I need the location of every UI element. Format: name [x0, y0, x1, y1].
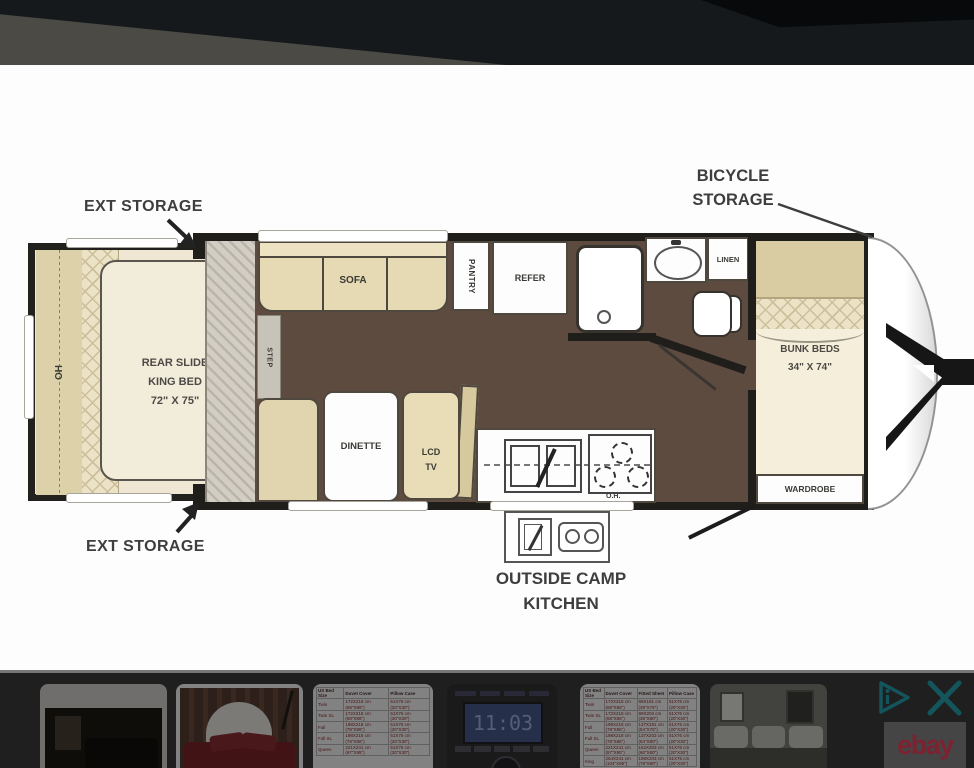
burner: [611, 442, 633, 464]
sofa-label: SOFA: [260, 275, 446, 286]
ext-storage-top-label: EXT STORAGE: [84, 198, 203, 216]
wardrobe: WARDROBE: [756, 474, 864, 504]
dinette: DINETTE: [323, 391, 399, 502]
ext-storage-top-arrow: [162, 216, 206, 254]
ad-dim-overlay: [0, 670, 974, 768]
bathroom-wall: [568, 333, 656, 341]
oh-kitchen-label: O.H.: [606, 493, 620, 500]
linen-label: LINEN: [717, 255, 740, 264]
toilet-bowl: [692, 291, 732, 337]
slide-window-top: [66, 238, 178, 248]
wardrobe-label: WARDROBE: [785, 484, 836, 494]
sofa-window: [258, 230, 448, 242]
bath-sink-bowl: [654, 246, 702, 280]
bicycle-storage-line: [772, 198, 876, 242]
bunk-room: BUNK BEDS 34" X 74": [756, 241, 864, 503]
kitchen-window: [490, 501, 634, 511]
sofa: SOFA: [258, 241, 448, 312]
hitch-a-frame: [886, 323, 974, 451]
camp-stove: [558, 522, 604, 552]
kitchen-sink: [504, 439, 582, 493]
slide-mechanism-strip: [205, 241, 257, 503]
bath-faucet: [671, 240, 681, 245]
shower: [576, 245, 644, 333]
bath-sink-counter: [645, 237, 707, 283]
step-label: STEP: [265, 347, 272, 367]
slide-window-left: [24, 315, 34, 419]
ext-storage-bottom-arrow: [168, 494, 208, 538]
bunk-wall-lower: [748, 390, 756, 506]
ebay-ad-card[interactable]: ebay: [884, 722, 966, 768]
burner: [627, 466, 649, 488]
ebay-logo: ebay: [897, 730, 953, 761]
bunk-label-1: BUNK BEDS: [756, 341, 864, 359]
stove: [588, 434, 652, 494]
lcd-tv-cabinet: LCD TV: [402, 391, 460, 500]
oh-slide-label: OH: [54, 365, 65, 380]
screenshot-stage: OH REAR SLIDE KING BED 72" X 75" SOFA: [0, 0, 974, 768]
bunk-wall-upper: [748, 237, 756, 340]
adchoices-icon[interactable]: [872, 680, 914, 716]
rear-cabinet: [257, 398, 319, 502]
refer-label: REFER: [515, 273, 546, 283]
bunk-label-2: 34" X 74": [756, 359, 864, 377]
bunk-bedding: [756, 241, 864, 299]
refrigerator: REFER: [492, 241, 568, 315]
burner: [594, 466, 616, 488]
pantry-label: PANTRY: [467, 259, 476, 294]
outside-camp-kitchen-label: OUTSIDE CAMP KITCHEN: [461, 566, 661, 616]
close-ad-icon[interactable]: [922, 678, 966, 720]
slide-window-bottom: [66, 493, 172, 503]
kitchen-counter: O.H.: [476, 428, 656, 503]
lcd-label-1: LCD: [404, 445, 458, 460]
entry-step: STEP: [257, 315, 281, 399]
bunk-pillow-strip: [756, 299, 864, 329]
top-photo-band: [0, 0, 974, 65]
outside-camp-kitchen: [504, 511, 610, 563]
lcd-label-2: TV: [404, 460, 458, 475]
shower-drain: [597, 310, 611, 324]
ext-storage-bottom-label: EXT STORAGE: [86, 538, 205, 556]
camp-sink: [518, 518, 552, 556]
dinette-label: DINETTE: [341, 441, 382, 452]
slide-oh-cabinet: OH: [36, 250, 83, 495]
pantry: PANTRY: [452, 241, 490, 311]
dinette-window: [288, 501, 428, 511]
linen-closet: LINEN: [707, 237, 749, 281]
